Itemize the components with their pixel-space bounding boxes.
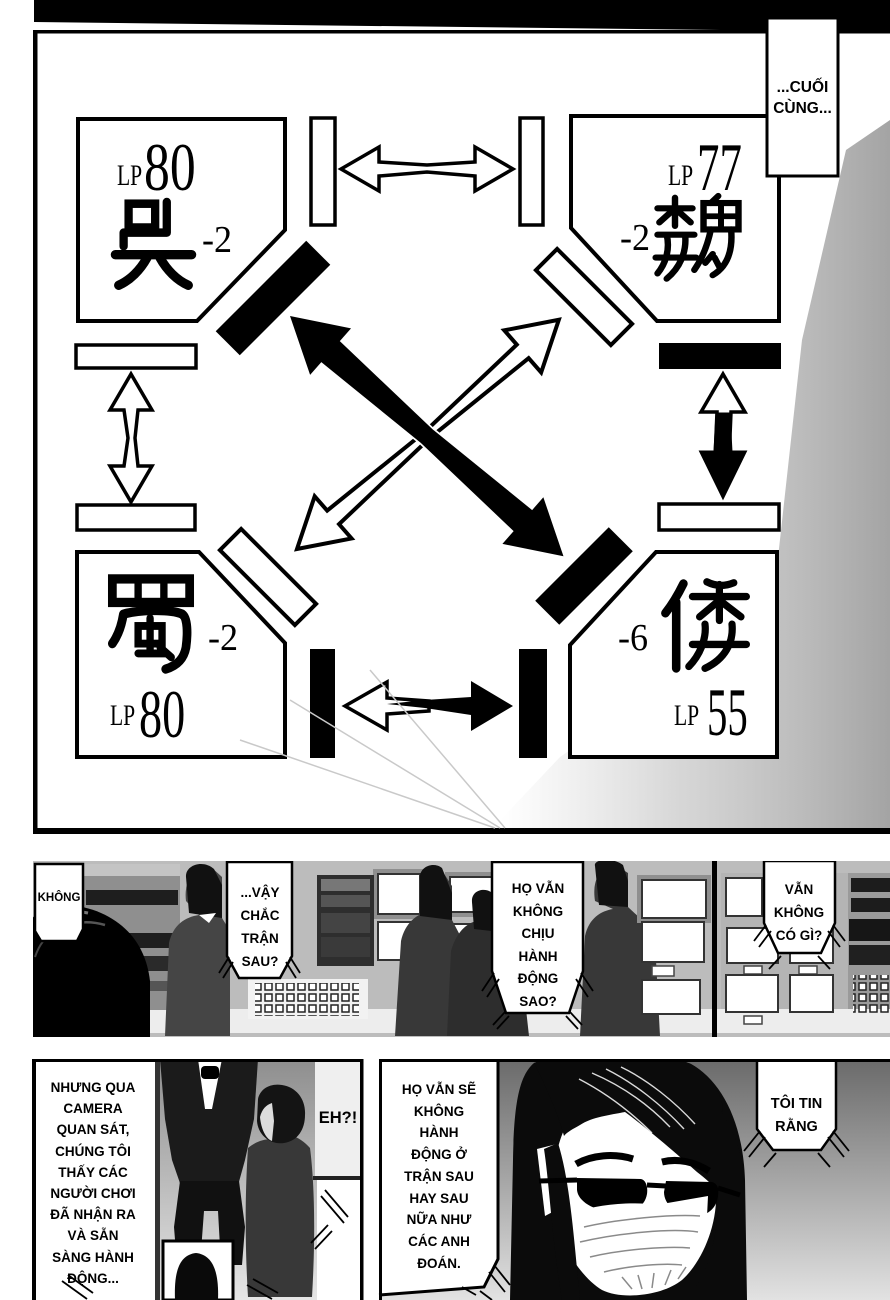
svg-text:55: 55 xyxy=(707,676,748,751)
svg-text:77: 77 xyxy=(697,131,742,205)
svg-text:LP: LP xyxy=(110,699,135,732)
svg-text:80: 80 xyxy=(144,130,196,205)
svg-text:-2: -2 xyxy=(202,219,232,261)
svg-text:-2: -2 xyxy=(208,617,238,659)
svg-text:LP: LP xyxy=(117,159,142,192)
svg-text:80: 80 xyxy=(139,676,185,752)
svg-text:LP: LP xyxy=(674,699,699,732)
svg-text:-2: -2 xyxy=(620,217,650,259)
svg-text:LP: LP xyxy=(668,159,693,192)
svg-text:-6: -6 xyxy=(618,617,648,659)
